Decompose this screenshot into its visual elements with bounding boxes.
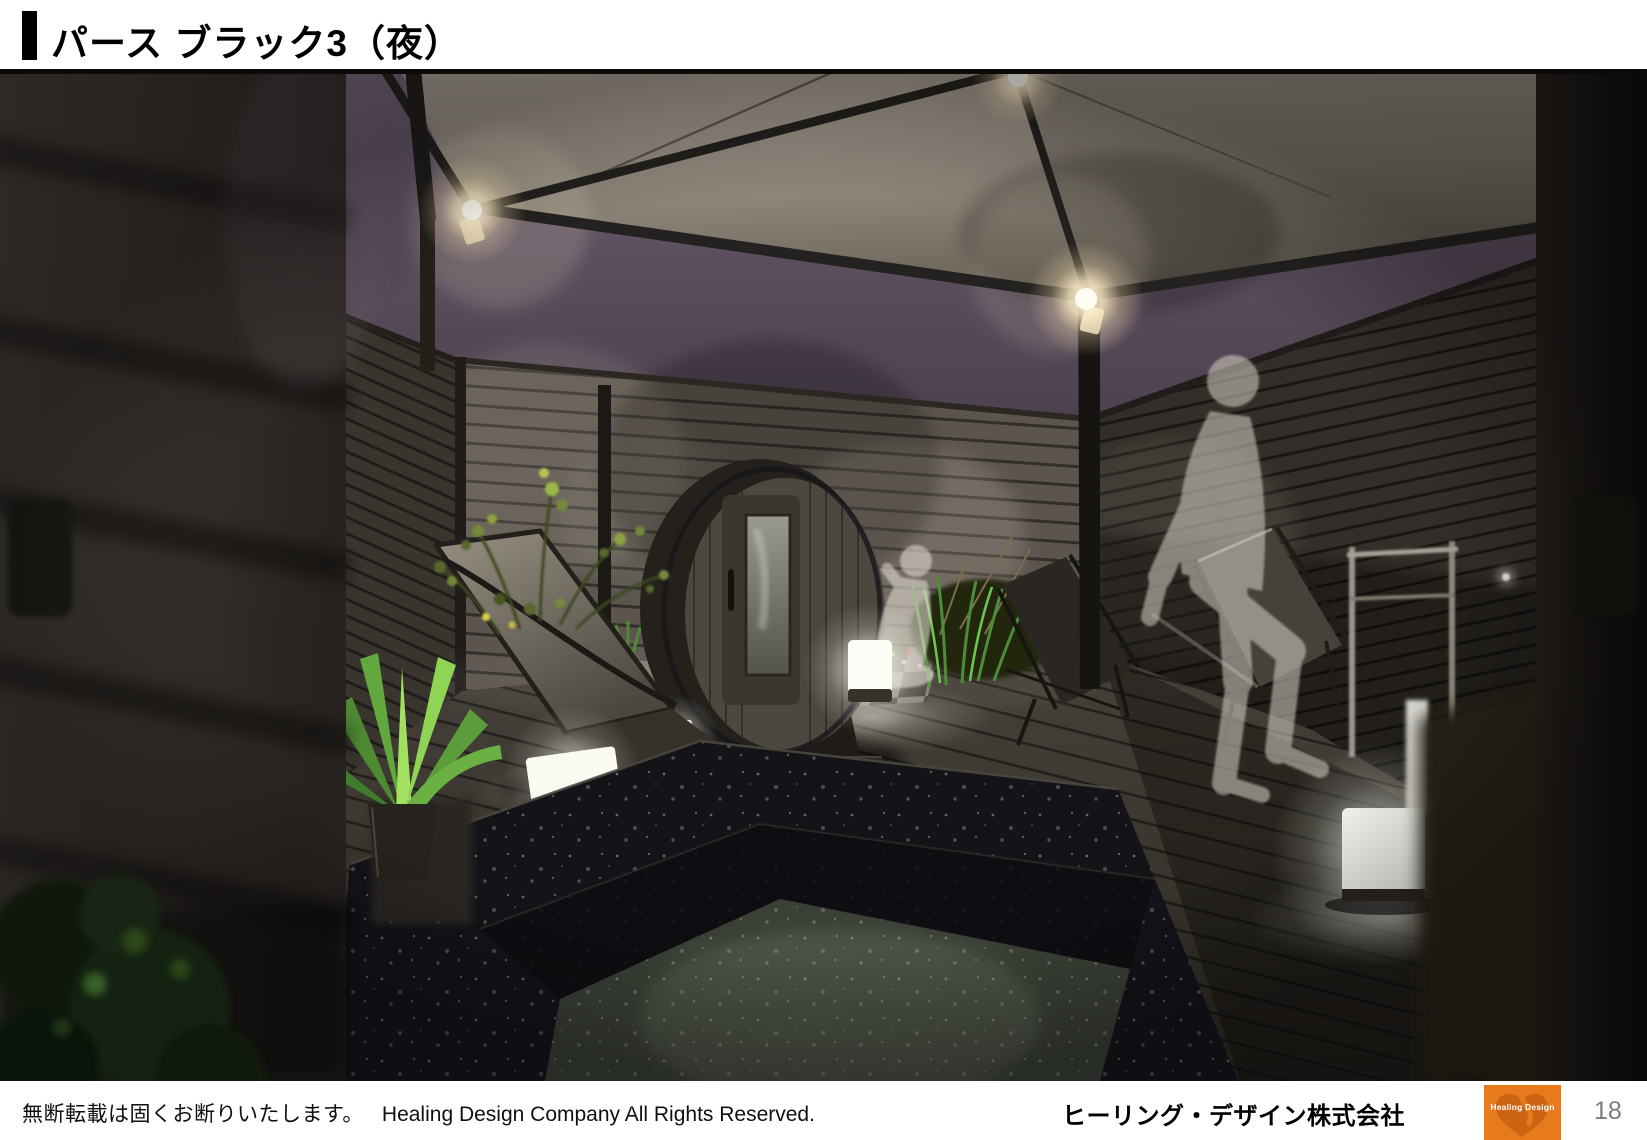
logo-text: Healing Design [1484, 1102, 1561, 1112]
slide-footer: 無断転載は固くお断りいたします。Healing Design Company A… [0, 1081, 1647, 1140]
heart-swirl-icon [1484, 1085, 1561, 1140]
page-number: 18 [1594, 1097, 1622, 1126]
slide-header: パース ブラック3（夜） [0, 0, 1647, 69]
page-title: パース ブラック3（夜） [51, 13, 462, 67]
presentation-slide: パース ブラック3（夜） [0, 0, 1647, 1140]
title-marker-bar [22, 11, 37, 60]
vignette-overlay [0, 69, 1647, 1081]
copyright-notice: 無断転載は固くお断りいたします。Healing Design Company A… [22, 1098, 815, 1128]
render-scene [0, 69, 1647, 1081]
company-name: ヒーリング・デザイン株式会社 [1062, 1096, 1405, 1131]
copyright-notice-jp: 無断転載は固くお断りいたします。 [22, 1103, 364, 1126]
render-image [0, 69, 1647, 1081]
company-logo: Healing Design [1484, 1085, 1561, 1140]
copyright-notice-en: Healing Design Company All Rights Reserv… [382, 1103, 815, 1126]
